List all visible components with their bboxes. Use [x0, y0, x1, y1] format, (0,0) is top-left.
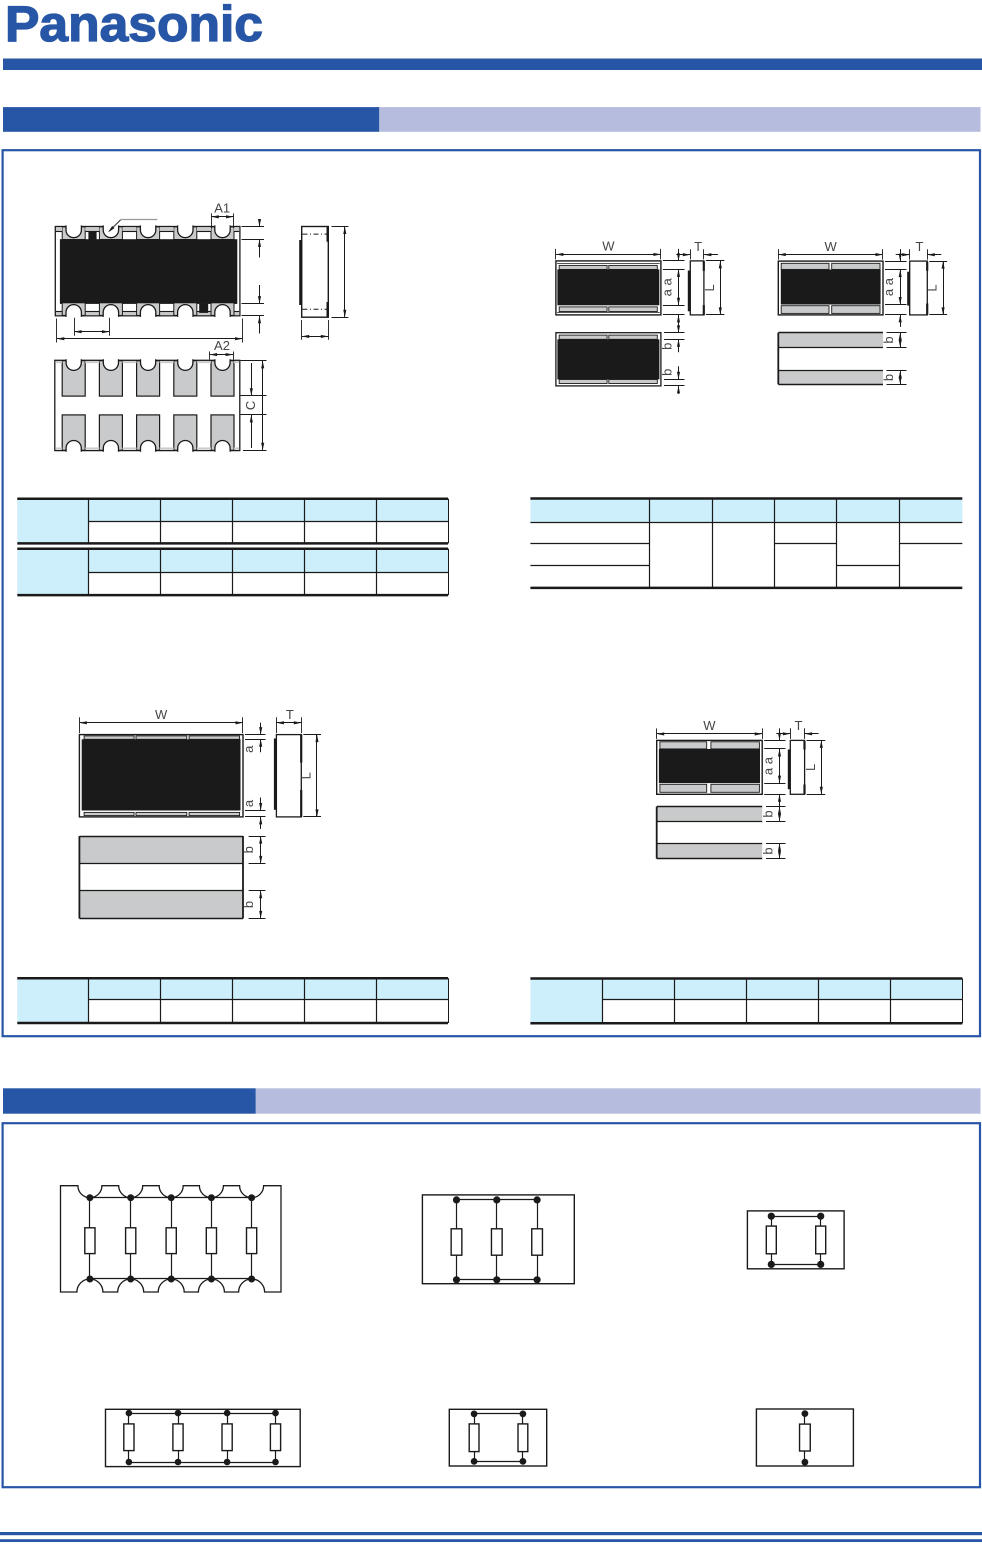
svg-text:b: b [760, 847, 775, 854]
svg-text:L: L [925, 284, 940, 291]
svg-text:T: T [286, 707, 294, 722]
svg-text:W: W [825, 239, 838, 254]
svg-text:L: L [803, 764, 818, 771]
svg-text:b: b [881, 374, 896, 381]
svg-text:a a: a a [660, 278, 675, 297]
svg-text:b: b [760, 810, 775, 817]
svg-text:b: b [881, 336, 896, 343]
svg-text:a a: a a [881, 277, 896, 296]
svg-text:Panasonic: Panasonic [5, 0, 263, 52]
svg-text:b: b [241, 901, 256, 908]
svg-text:b: b [241, 846, 256, 853]
svg-text:L: L [299, 772, 314, 779]
svg-text:b: b [660, 343, 675, 350]
svg-text:T: T [694, 239, 702, 254]
svg-text:b: b [660, 369, 675, 376]
svg-text:C: C [243, 401, 258, 410]
svg-text:A2: A2 [214, 338, 230, 353]
svg-text:W: W [155, 707, 168, 722]
svg-text:A1: A1 [214, 201, 230, 216]
svg-text:a a: a a [760, 756, 775, 775]
svg-text:a: a [241, 799, 256, 807]
svg-text:T: T [916, 239, 924, 254]
svg-text:W: W [602, 239, 615, 254]
svg-text:L: L [702, 284, 717, 291]
svg-text:T: T [794, 718, 802, 733]
svg-text:a: a [241, 745, 256, 753]
svg-text:W: W [703, 718, 716, 733]
